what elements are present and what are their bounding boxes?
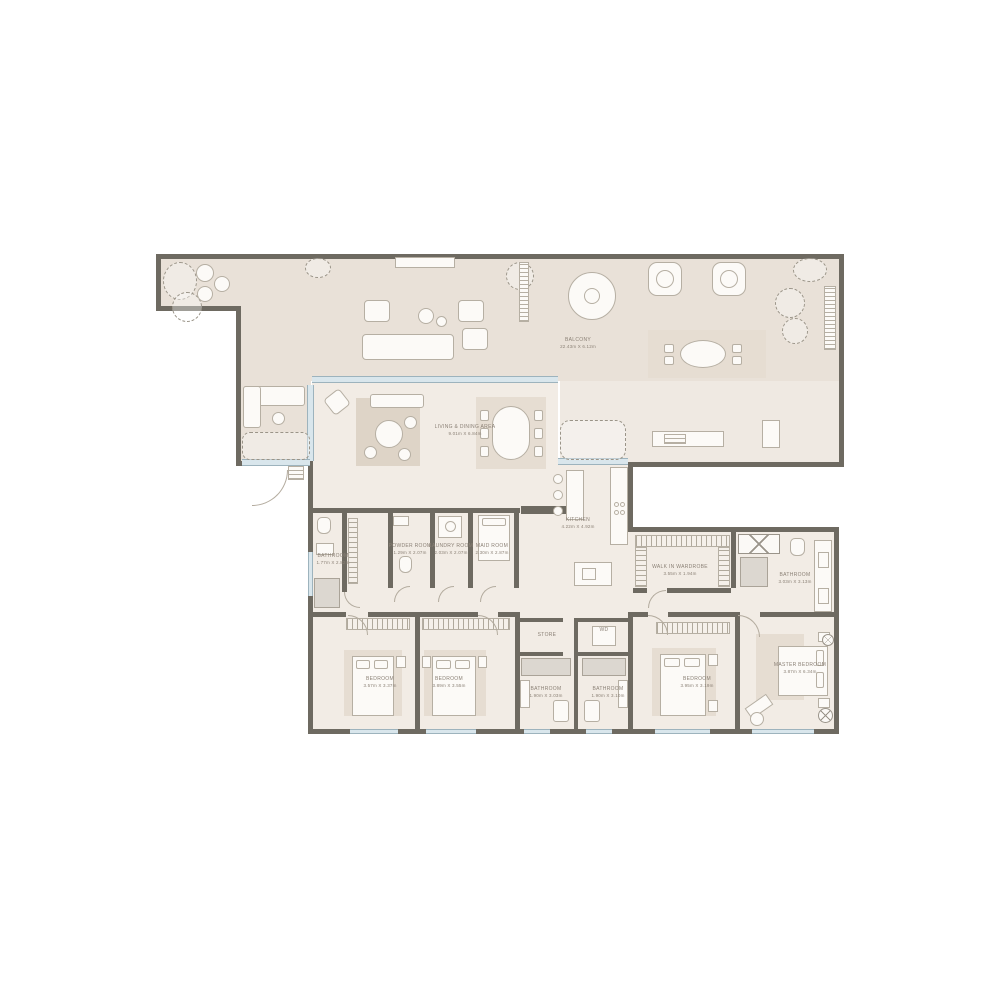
balcony-armchair-3 bbox=[462, 328, 488, 350]
kitchen-burner-2 bbox=[620, 502, 625, 507]
living-round-table bbox=[375, 420, 403, 448]
bed3-nightstand-2 bbox=[708, 700, 718, 712]
wall-wardrobe-bottom-1 bbox=[633, 588, 647, 593]
kitchen-stool-2 bbox=[553, 490, 563, 500]
master-pillow-1 bbox=[816, 650, 824, 666]
wall-right-upper bbox=[839, 254, 844, 467]
floor-plan: BALCONY 22.43m X 6.12m LIVING & DINING A… bbox=[0, 0, 1000, 1000]
wall-kitchen-right bbox=[628, 462, 633, 532]
wall-hall-1 bbox=[312, 612, 346, 617]
master-nightstand-2 bbox=[818, 698, 830, 708]
kitchen-stool-1 bbox=[553, 474, 563, 484]
wall-bath-left-v bbox=[342, 512, 347, 592]
bath-cr-shower bbox=[582, 658, 626, 676]
dining-chair-6 bbox=[534, 446, 543, 457]
master-desk-chair bbox=[750, 712, 764, 726]
kitchen-burner-3 bbox=[614, 510, 619, 515]
bed2-nightstand-2 bbox=[478, 656, 487, 668]
bed1-pillow-2 bbox=[374, 660, 388, 669]
living-chair-1 bbox=[364, 446, 377, 459]
trellis-right bbox=[824, 286, 836, 350]
powder-toilet bbox=[399, 556, 412, 573]
plant-right-2 bbox=[775, 288, 805, 318]
window-bed3 bbox=[655, 729, 710, 734]
master-shower bbox=[740, 557, 768, 587]
linen-closet bbox=[348, 518, 358, 584]
balcony-armchair-1 bbox=[364, 300, 390, 322]
bed3-pillow-1 bbox=[664, 658, 680, 667]
balcony-trellis bbox=[519, 262, 529, 322]
wall-hall-2 bbox=[368, 612, 478, 617]
balcony-console bbox=[395, 257, 455, 268]
dining-table bbox=[492, 406, 530, 460]
wall-bed3-top-2 bbox=[668, 612, 735, 617]
kitchen-counter-right bbox=[610, 467, 628, 545]
window-living-top bbox=[312, 376, 558, 383]
wall-store-bottom bbox=[519, 652, 563, 656]
bath-left-sink bbox=[316, 543, 334, 555]
duct-xbox bbox=[738, 534, 780, 554]
kitchen-burner-1 bbox=[614, 502, 619, 507]
balcony-coffee-table-2 bbox=[436, 316, 447, 327]
wall-wardrobe-bottom-2 bbox=[667, 588, 731, 593]
balcony-chair-1 bbox=[196, 264, 214, 282]
dining-chair-5 bbox=[534, 428, 543, 439]
planter-kitchen-front bbox=[560, 420, 626, 460]
bath-cl-vanity bbox=[520, 680, 530, 708]
outdoor-grill bbox=[664, 434, 686, 444]
terrace-planter bbox=[242, 432, 310, 460]
wall-left-upper bbox=[156, 254, 161, 311]
balcony-chair-2 bbox=[214, 276, 230, 292]
door-arc-foyer bbox=[252, 470, 288, 506]
terrace-table bbox=[272, 412, 285, 425]
kitchen-stool-3 bbox=[553, 506, 563, 516]
living-chair-2 bbox=[398, 448, 411, 461]
wall-symbol-2 bbox=[822, 634, 834, 646]
wall-masterbath-bottom bbox=[760, 612, 834, 617]
bed1-pillow-1 bbox=[356, 660, 370, 669]
washer-door bbox=[445, 521, 456, 532]
wall-bed2-central bbox=[515, 612, 520, 734]
dining-chair-3 bbox=[480, 446, 489, 457]
balcony-armchair-2 bbox=[458, 300, 484, 322]
plant-right-3 bbox=[782, 318, 808, 344]
wall-balcony-bottom bbox=[628, 462, 844, 467]
wall-symbol-1 bbox=[818, 708, 833, 723]
kitchen-island bbox=[566, 470, 584, 520]
kitchen-sink-basin bbox=[582, 568, 596, 580]
bed3-pillow-2 bbox=[684, 658, 700, 667]
powder-sink bbox=[393, 516, 409, 526]
kitchen-burner-4 bbox=[620, 510, 625, 515]
balcony-dining-chair-1 bbox=[664, 344, 674, 353]
window-terrace-bottom bbox=[242, 459, 310, 466]
balcony-dining-chair-3 bbox=[732, 344, 742, 353]
wall-bed3-top-1 bbox=[633, 612, 648, 617]
wall-right-lower bbox=[834, 527, 839, 734]
bath-cr-toilet bbox=[584, 700, 600, 722]
wall-bed1-bed2 bbox=[415, 612, 420, 734]
balcony-dining-chair-2 bbox=[664, 356, 674, 365]
wardrobe-hatch-right bbox=[718, 547, 730, 587]
dining-chair-2 bbox=[480, 428, 489, 439]
wall-wd-bottom bbox=[578, 652, 628, 656]
wall-living-bottom bbox=[308, 508, 520, 513]
bed2-pillow-1 bbox=[436, 660, 451, 669]
wardrobe-hatch-left bbox=[635, 547, 647, 587]
window-master bbox=[752, 729, 814, 734]
wall-central-mid bbox=[574, 618, 578, 734]
wall-top bbox=[156, 254, 844, 259]
bath-left-toilet bbox=[317, 517, 331, 534]
living-sofa bbox=[370, 394, 424, 408]
dining-chair-4 bbox=[534, 410, 543, 421]
bath-left-shower bbox=[314, 578, 340, 608]
window-bed2 bbox=[426, 729, 476, 734]
bath-cl-shower bbox=[521, 658, 571, 676]
lounge-chair-2-seat bbox=[720, 270, 738, 288]
bed1-nightstand bbox=[396, 656, 406, 668]
wall-wd-top bbox=[578, 618, 628, 622]
window-bed1 bbox=[350, 729, 398, 734]
balcony-chair-3 bbox=[197, 286, 213, 302]
window-bath-cl bbox=[524, 729, 550, 734]
balcony-round-table-inner bbox=[584, 288, 600, 304]
window-bath-left bbox=[308, 552, 313, 596]
wall-powder-right bbox=[430, 512, 435, 588]
terrace-sofa-side bbox=[243, 386, 261, 428]
balcony-sofa bbox=[362, 334, 454, 360]
maid-pillow bbox=[482, 518, 506, 526]
bed2-nightstand-1 bbox=[422, 656, 431, 668]
wall-store-top bbox=[519, 618, 563, 622]
wall-left-mid bbox=[236, 306, 241, 466]
bed2-pillow-2 bbox=[455, 660, 470, 669]
master-sink-1 bbox=[818, 552, 829, 568]
window-bath-cr bbox=[586, 729, 612, 734]
wd-appliance bbox=[592, 626, 616, 646]
lounge-chair-1-seat bbox=[656, 270, 674, 288]
wall-central-right bbox=[628, 612, 633, 734]
bath-cl-toilet bbox=[553, 700, 569, 722]
wardrobe-hatch-top bbox=[635, 535, 730, 547]
master-sink-2 bbox=[818, 588, 829, 604]
bed3-nightstand-1 bbox=[708, 654, 718, 666]
plant-right-1 bbox=[793, 258, 827, 282]
balcony-dining-table bbox=[680, 340, 726, 368]
wall-maid-right bbox=[514, 512, 519, 588]
wall-laundry-right bbox=[468, 512, 473, 588]
foyer-closet bbox=[288, 466, 304, 480]
outdoor-counter bbox=[652, 431, 724, 447]
balcony-coffee-table-1 bbox=[418, 308, 434, 324]
bath-cr-vanity bbox=[618, 680, 628, 708]
balcony-dining-chair-4 bbox=[732, 356, 742, 365]
plant-top-mid bbox=[305, 258, 331, 278]
outdoor-cabinet bbox=[762, 420, 780, 448]
wall-wardrobe-right bbox=[731, 532, 736, 588]
living-chair-3 bbox=[404, 416, 417, 429]
master-pillow-2 bbox=[816, 672, 824, 688]
dining-chair-1 bbox=[480, 410, 489, 421]
master-toilet bbox=[790, 538, 805, 556]
wall-left-lower bbox=[308, 461, 313, 734]
